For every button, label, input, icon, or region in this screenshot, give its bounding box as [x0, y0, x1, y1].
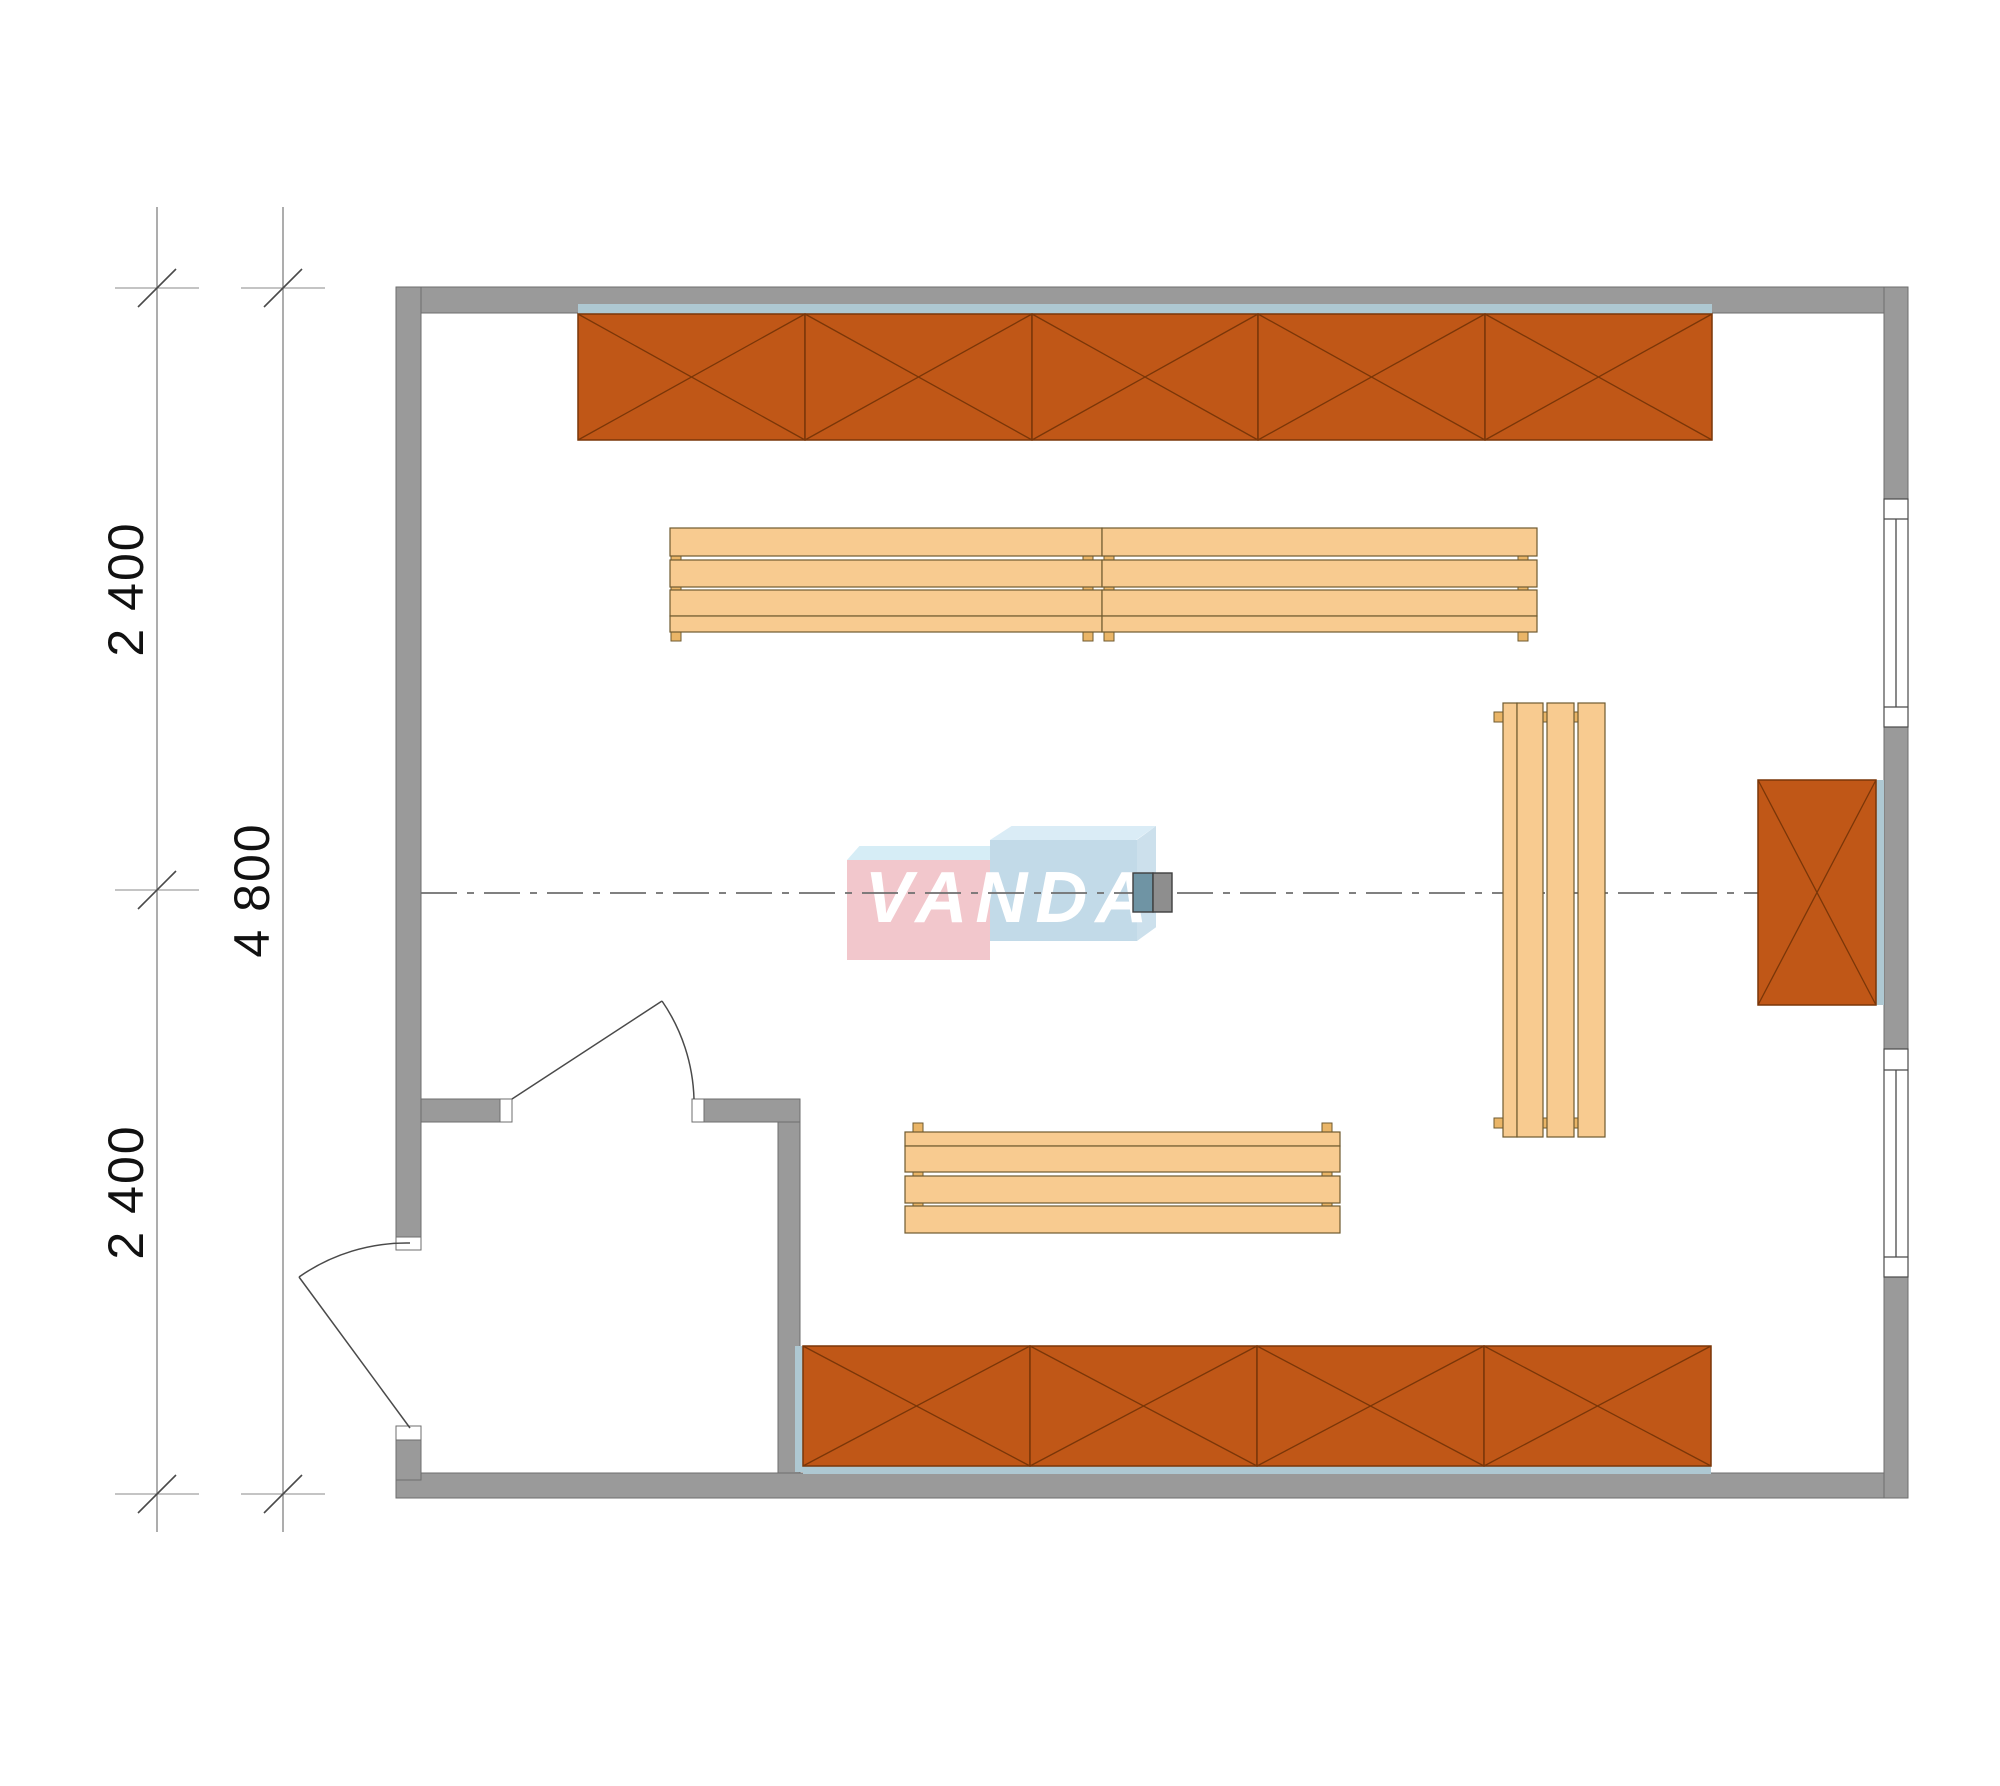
centerline-column [1133, 873, 1172, 912]
window-lower [1884, 1049, 1908, 1277]
right-cabinet-back-panel [1876, 780, 1884, 1005]
dimension-lines [115, 207, 325, 1532]
top-shelf-back-panel [578, 304, 1712, 314]
bottom-shelf-side-panel [795, 1346, 803, 1472]
exterior-door [299, 1243, 410, 1428]
interior-door [512, 1001, 694, 1099]
lower-bench [905, 1123, 1340, 1233]
window-upper [1884, 499, 1908, 727]
interior-door-swing-arc [662, 1001, 694, 1099]
top-shelf-run [578, 314, 1712, 440]
dimension-label-total: 4 800 [223, 822, 281, 957]
exterior-door-swing-arc [299, 1243, 410, 1277]
floorplan-canvas: VANDA [0, 0, 2000, 1786]
vertical-bench [1494, 703, 1605, 1137]
interior-wall-right-stub [704, 1099, 800, 1122]
interior-wall-left-stub [421, 1099, 500, 1122]
interior-door-jamb-left [500, 1099, 512, 1122]
right-wall-upper [1884, 287, 1908, 499]
floorplan-svg [0, 0, 2000, 1786]
right-wall-lower [1884, 1277, 1908, 1498]
bottom-wall [396, 1473, 1908, 1498]
interior-door-jamb-right [692, 1099, 704, 1122]
bottom-shelf-back-panel [803, 1466, 1711, 1474]
interior-door-leaf [512, 1001, 662, 1099]
bottom-shelf-run [803, 1346, 1711, 1466]
left-wall-upper [396, 287, 421, 1237]
right-wall-middle [1884, 727, 1908, 1049]
exterior-door-leaf [299, 1277, 410, 1428]
upper-bench [670, 528, 1537, 641]
right-cabinet [1758, 780, 1876, 1005]
dimension-label-segment-top: 2 400 [97, 521, 155, 656]
dimension-label-segment-bottom: 2 400 [97, 1124, 155, 1259]
exterior-door-jamb-bottom [396, 1426, 421, 1440]
left-wall-lower [396, 1440, 421, 1480]
